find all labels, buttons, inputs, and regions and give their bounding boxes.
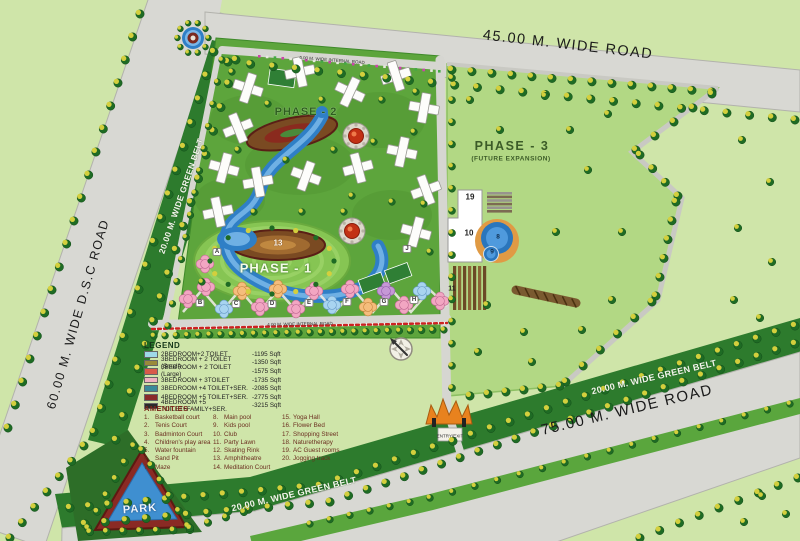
site-master-plan: 45.00 M. WIDE ROAD 60.00 M. WIDE D.S.C R…	[0, 0, 800, 541]
tower-badge-j: J	[403, 245, 412, 253]
legend-swatch	[144, 368, 158, 375]
tower-badge-h: H	[410, 296, 419, 304]
amenities-list: AMENITIES - 1.Basketball court 2.Tenis C…	[144, 404, 384, 472]
legend: LEGEND 2BEDROOM+2 TOILET -1195 Sqft 3BED…	[144, 341, 296, 410]
tower-badge-g: G	[380, 298, 389, 306]
tower-badge-a: A	[213, 248, 222, 256]
legend-title: LEGEND	[144, 341, 296, 350]
tower-badge-b: B	[196, 299, 205, 307]
entry-exit-label: ENTRY/EXIT	[437, 434, 463, 439]
legend-swatch	[144, 351, 158, 358]
site-plan-canvas	[0, 0, 800, 541]
legend-swatch	[144, 360, 158, 367]
park-label: PARK	[122, 502, 157, 516]
phase-3-label: PHASE - 3	[475, 139, 550, 153]
tower-badge-f: F	[343, 298, 352, 306]
marker-kids-pool: 9	[490, 249, 494, 256]
marker-ac-guest-rooms: 19	[466, 193, 475, 202]
amenities-title: AMENITIES -	[144, 404, 384, 413]
marker-main-pool: 8	[496, 234, 500, 241]
amenities-col-1: 1.Basketball court 2.Tenis Court 3.Badmi…	[144, 414, 213, 472]
marker-party-lawn: 11	[448, 286, 455, 293]
marker-amphitheatre: 13	[274, 239, 283, 248]
tower-badge-c: C	[232, 300, 241, 308]
tower-badge-d: D	[268, 300, 277, 308]
phase-2-label: PHASE - 2	[275, 106, 338, 118]
legend-swatch	[144, 377, 158, 384]
marker-club: 10	[465, 229, 474, 238]
legend-row: 3BEDROOM + 3TOILET -1735 Sqft	[144, 376, 296, 385]
amenities-col-2: 8.Main pool 9.Kids pool 10.Club 11.Party…	[213, 414, 282, 472]
legend-row: 3BEDROOM +4 TOILET+SER. -2085 Sqft	[144, 384, 296, 393]
phase-1-label: PHASE - 1	[240, 261, 313, 276]
phase-3-sublabel: (FUTURE EXPANSION)	[471, 156, 550, 163]
legend-swatch	[144, 394, 158, 401]
tower-badge-e: E	[305, 299, 314, 307]
legend-swatch	[144, 385, 158, 392]
legend-row: 3BEDROOM + 2 TOILET (Large) -1575 Sqft	[144, 367, 296, 376]
amenities-col-3: 15.Yoga Hall 16.Flower Bed 17.Shopping S…	[282, 414, 372, 472]
